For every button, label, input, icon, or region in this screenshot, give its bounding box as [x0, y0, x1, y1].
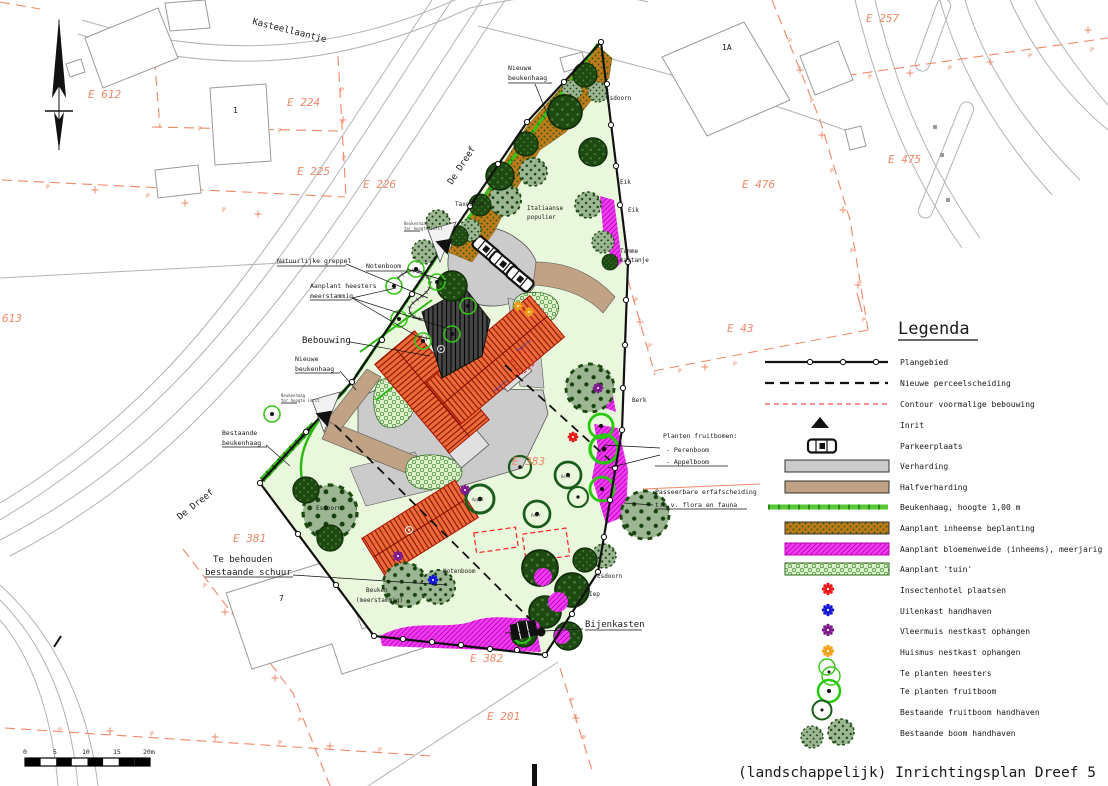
svg-text:P: P — [862, 316, 866, 324]
parcel-e475: E 475 — [888, 153, 921, 166]
svg-text:P: P — [570, 696, 574, 704]
legend-item: Plangebied — [900, 358, 948, 367]
label-eik-1: Eik — [620, 179, 631, 186]
svg-text:beukenhaag: beukenhaag — [295, 365, 334, 373]
svg-text:t.b.v. flora en fauna: t.b.v. flora en fauna — [655, 501, 737, 509]
legend-symbol-inrit — [811, 417, 829, 428]
legend-item: Te planten fruitboom — [900, 687, 997, 696]
svg-text:- Appelboom: - Appelboom — [666, 458, 709, 466]
svg-text:P: P — [146, 192, 150, 200]
label-natuurlijke-greppel: Natuurlijke greppel — [277, 257, 351, 265]
legend-item: Uilenkast handhaven — [900, 607, 992, 616]
svg-text:P: P — [850, 247, 854, 255]
label-berk: Berk — [632, 397, 647, 404]
legend-symbol-verharding — [785, 460, 889, 472]
legend-item: Inrit — [900, 421, 924, 430]
street-de-dreef-lower: De Dreef — [176, 488, 216, 523]
legend-item: Insectenhotel plaatsen — [900, 586, 1006, 595]
legend-symbol-insectenhotel — [822, 583, 834, 595]
svg-text:P: P — [733, 360, 737, 368]
svg-text:bestaande schuur: bestaande schuur — [205, 568, 292, 578]
legend-item: Vleermuis nestkast ophangen — [900, 627, 1030, 636]
label-peer: Peer — [531, 513, 541, 518]
svg-text:P: P — [1028, 52, 1032, 60]
svg-text:meerstammig: meerstammig — [310, 292, 353, 300]
parcel-e225: E 225 — [297, 165, 330, 178]
legend-item: Halfverharding — [900, 483, 968, 492]
parcel-e226: E 226 — [363, 178, 396, 191]
svg-text:P: P — [298, 716, 302, 724]
label-iep: Iep — [589, 591, 600, 598]
svg-text:P: P — [810, 97, 814, 105]
parcel-e383: E 383 — [512, 455, 545, 468]
legend-symbol-tuin — [785, 563, 889, 575]
svg-text:P: P — [378, 746, 382, 754]
parcel-613: 613 — [2, 312, 22, 325]
label-planten-fruitbomen: Planten fruitbomen: — [663, 432, 737, 440]
legend-item: Bestaande fruitboom handhaven — [900, 708, 1040, 717]
label-italiaanse-populier: Italiaanse — [527, 205, 564, 212]
building-number-1a: 1A — [722, 43, 732, 52]
svg-text:0: 0 — [23, 748, 27, 756]
parcel-e476: E 476 — [742, 178, 775, 191]
svg-text:P: P — [648, 342, 652, 350]
svg-text:P: P — [278, 127, 282, 135]
svg-text:beukenhaag: beukenhaag — [508, 74, 547, 82]
legend-item: Te planten heesters — [900, 669, 992, 678]
plan-svg: P P P P P P P P P P P P P P P P P P P P … — [0, 0, 1108, 786]
svg-text:10: 10 — [82, 748, 90, 756]
legend-item: Parkeerplaats — [900, 442, 963, 451]
svg-text:P: P — [222, 206, 226, 214]
label-tamme-kastanje: Tamme — [620, 248, 638, 255]
parcel-e382: E 382 — [470, 652, 503, 665]
svg-text:(meerstammig): (meerstammig) — [356, 597, 403, 604]
label-taxodium: Taxodium — [455, 201, 484, 208]
svg-text:15: 15 — [113, 748, 121, 756]
label-appel: Appel — [472, 497, 485, 502]
building-number-7: 7 — [279, 594, 284, 603]
label-beuken: Beuken — [366, 587, 388, 594]
svg-text:ter hoogte inrit: ter hoogte inrit — [404, 226, 443, 231]
legend-item: Contour voormalige bebouwing — [900, 400, 1035, 409]
legend-symbol-uilenkast — [822, 604, 834, 616]
legend-item: Beukenhaag, hoogte 1,00 m — [900, 503, 1021, 512]
parcel-e381: E 381 — [233, 532, 266, 545]
svg-text:P: P — [678, 367, 682, 375]
legend-symbol-huismus — [822, 645, 834, 657]
legend-symbol-vleermuis — [822, 624, 834, 636]
svg-text:5: 5 — [53, 748, 57, 756]
parcel-e43: E 43 — [727, 322, 754, 335]
svg-text:P: P — [342, 154, 346, 162]
legend-item: Aanplant bloemenweide (inheems), meerjar… — [900, 545, 1102, 554]
svg-text:P: P — [203, 582, 207, 590]
legend-item: Aanplant inheemse beplanting — [900, 524, 1035, 533]
label-esdoorn-ne: Esdoorn — [606, 95, 632, 102]
label-bebouwing: Bebouwing — [302, 336, 351, 346]
label-notenboom-s: Notenboom — [443, 568, 476, 575]
legend-item: Bestaande boom handhaven — [900, 729, 1016, 738]
svg-text:- Perenboom: - Perenboom — [666, 446, 709, 454]
label-esdoorn-w: Esdoorn — [316, 505, 342, 512]
svg-text:P: P — [340, 86, 344, 94]
svg-text:P: P — [634, 296, 638, 304]
street-de-dreef-upper: De Dreef — [446, 145, 478, 187]
parcel-e612: E 612 — [88, 88, 121, 101]
svg-text:populier: populier — [527, 214, 556, 221]
legend-symbol-fruitboom — [818, 680, 840, 702]
legend-symbol-halfverharding — [785, 481, 889, 493]
label-te-behouden-schuur: Te behouden — [213, 555, 273, 565]
street-kasteellaantje: Kasteellaantje — [251, 17, 327, 45]
label-nieuwe-beukenhaag-top: Nieuwe — [508, 64, 532, 72]
label-bijenkasten: Bijenkasten — [585, 620, 645, 630]
legend-title: Legenda — [898, 319, 970, 339]
label-nieuwe-beukenhaag-w: Nieuwe — [295, 355, 319, 363]
legend-item: Aanplant 'tuin' — [900, 565, 972, 574]
legend-symbol-inheemse — [785, 522, 889, 534]
legend: Legenda Plangebied Nieuwe perceelscheidi… — [765, 319, 1102, 748]
label-kers: Kers — [561, 474, 571, 479]
svg-text:P: P — [948, 64, 952, 72]
label-eik-2: Eik — [628, 207, 639, 214]
label-passeerbare-erfafscheiding: Passeerbare erfafscheiding — [655, 488, 757, 496]
legend-item: Huismus nestkast ophangen — [900, 648, 1021, 657]
label-notenboom-n: Notenboom — [366, 262, 401, 270]
svg-text:P: P — [198, 125, 202, 133]
svg-text:ter hoogte inrit: ter hoogte inrit — [281, 398, 320, 403]
svg-text:beukenhaag: beukenhaag — [222, 439, 261, 447]
svg-text:P: P — [150, 730, 154, 738]
svg-text:kastanje: kastanje — [620, 257, 649, 264]
site-plan-drawing: P P P P P P P P P P P P P P P P P P P P … — [0, 0, 1108, 786]
legend-symbol-bestaande-fruitboom — [813, 701, 832, 720]
parcel-e257: E 257 — [866, 12, 899, 25]
label-aanplant-heesters: Aanplant heesters — [310, 282, 377, 290]
legend-item: Verharding — [900, 462, 948, 471]
legend-item: Nieuwe perceelscheiding — [900, 379, 1011, 388]
building-number-1: 1 — [233, 106, 238, 115]
svg-text:20m: 20m — [143, 748, 155, 756]
label-bestaande-beukenhaag: Bestaande — [222, 429, 257, 437]
north-arrow — [45, 18, 73, 150]
parcel-e224: E 224 — [287, 96, 320, 109]
svg-text:P: P — [58, 726, 62, 734]
svg-text:P: P — [788, 37, 792, 45]
svg-text:P: P — [582, 734, 586, 742]
parcel-e201: E 201 — [487, 710, 520, 723]
svg-text:P: P — [1090, 46, 1094, 54]
legend-symbol-parkeerplaats — [808, 440, 836, 453]
svg-text:P: P — [868, 73, 872, 81]
label-esdoorn-se: Esdoorn — [597, 573, 623, 580]
svg-text:P: P — [278, 739, 282, 747]
legend-symbol-bloemenweide — [785, 543, 889, 555]
svg-text:P: P — [830, 167, 834, 175]
svg-text:P: P — [46, 183, 50, 191]
scale-bar: 0 5 10 15 20m — [23, 748, 155, 766]
legend-symbol-bestaande-boom — [801, 719, 854, 748]
drawing-title: (landschappelijk) Inrichtingsplan Dreef … — [738, 765, 1096, 781]
